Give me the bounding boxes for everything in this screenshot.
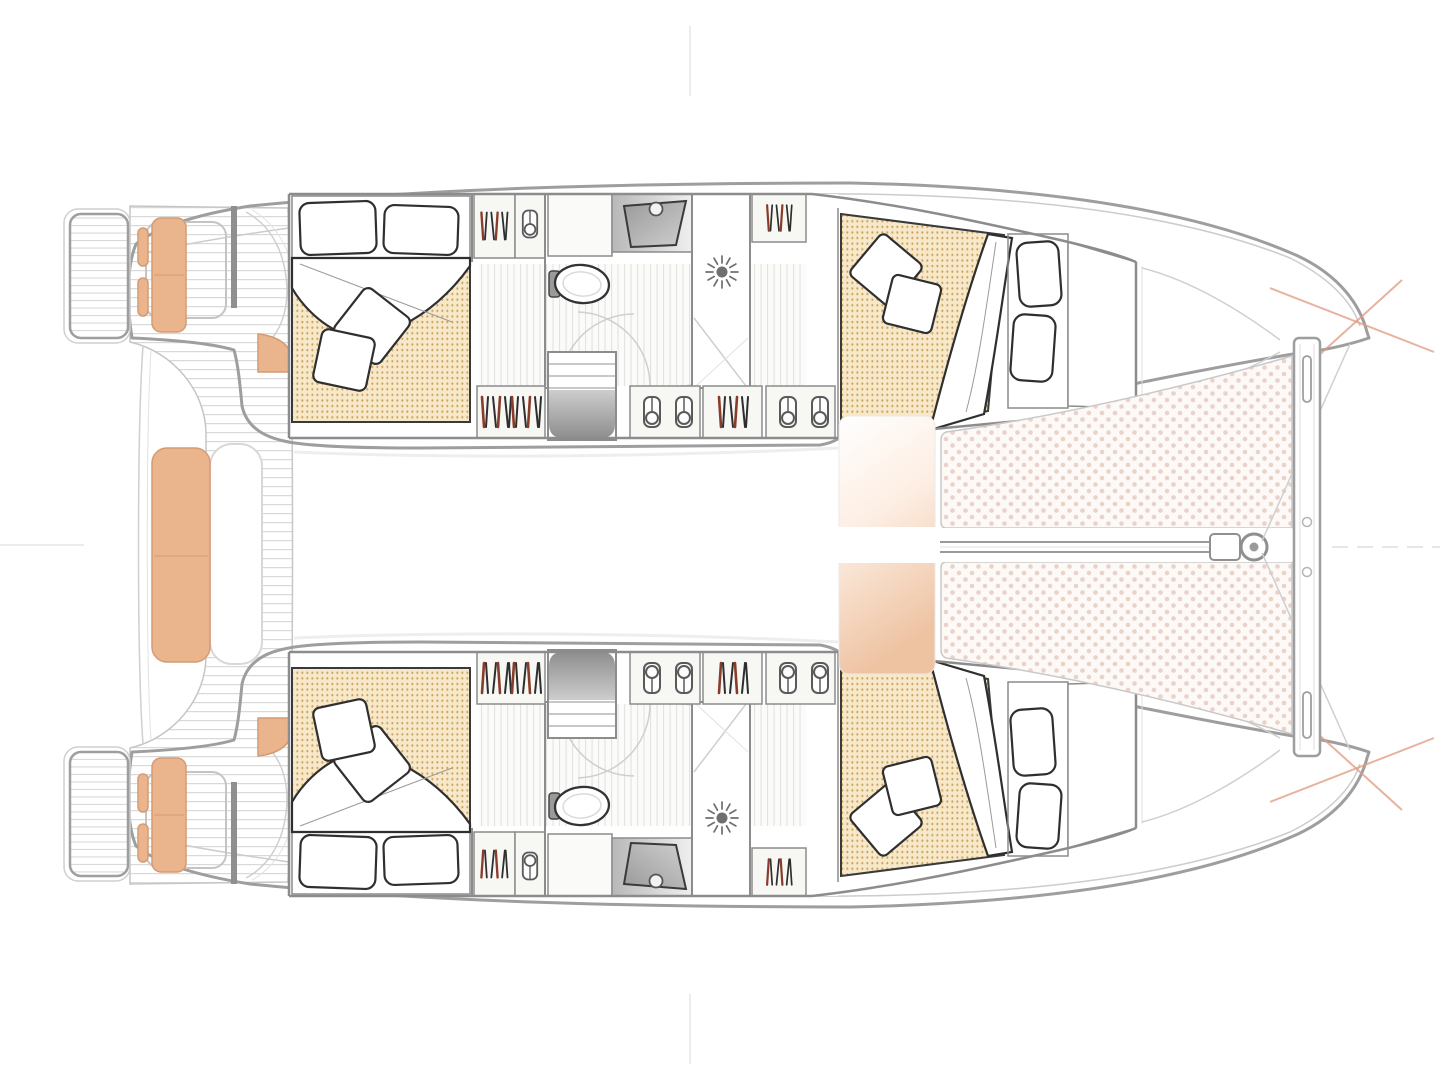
bench-backrest: [210, 444, 262, 664]
cockpit-bench: [152, 444, 262, 664]
bow-crossbeam: [1294, 338, 1320, 756]
mast-base-glow: [834, 416, 940, 674]
beam-slot: [1303, 692, 1311, 738]
boat-floor-plan-canvas: [0, 0, 1440, 1080]
catamaran-deck-plan: [0, 0, 1440, 1080]
bench-cushion: [152, 448, 210, 662]
beam-slot: [1303, 356, 1311, 402]
aft-beam-edge: [139, 346, 144, 744]
